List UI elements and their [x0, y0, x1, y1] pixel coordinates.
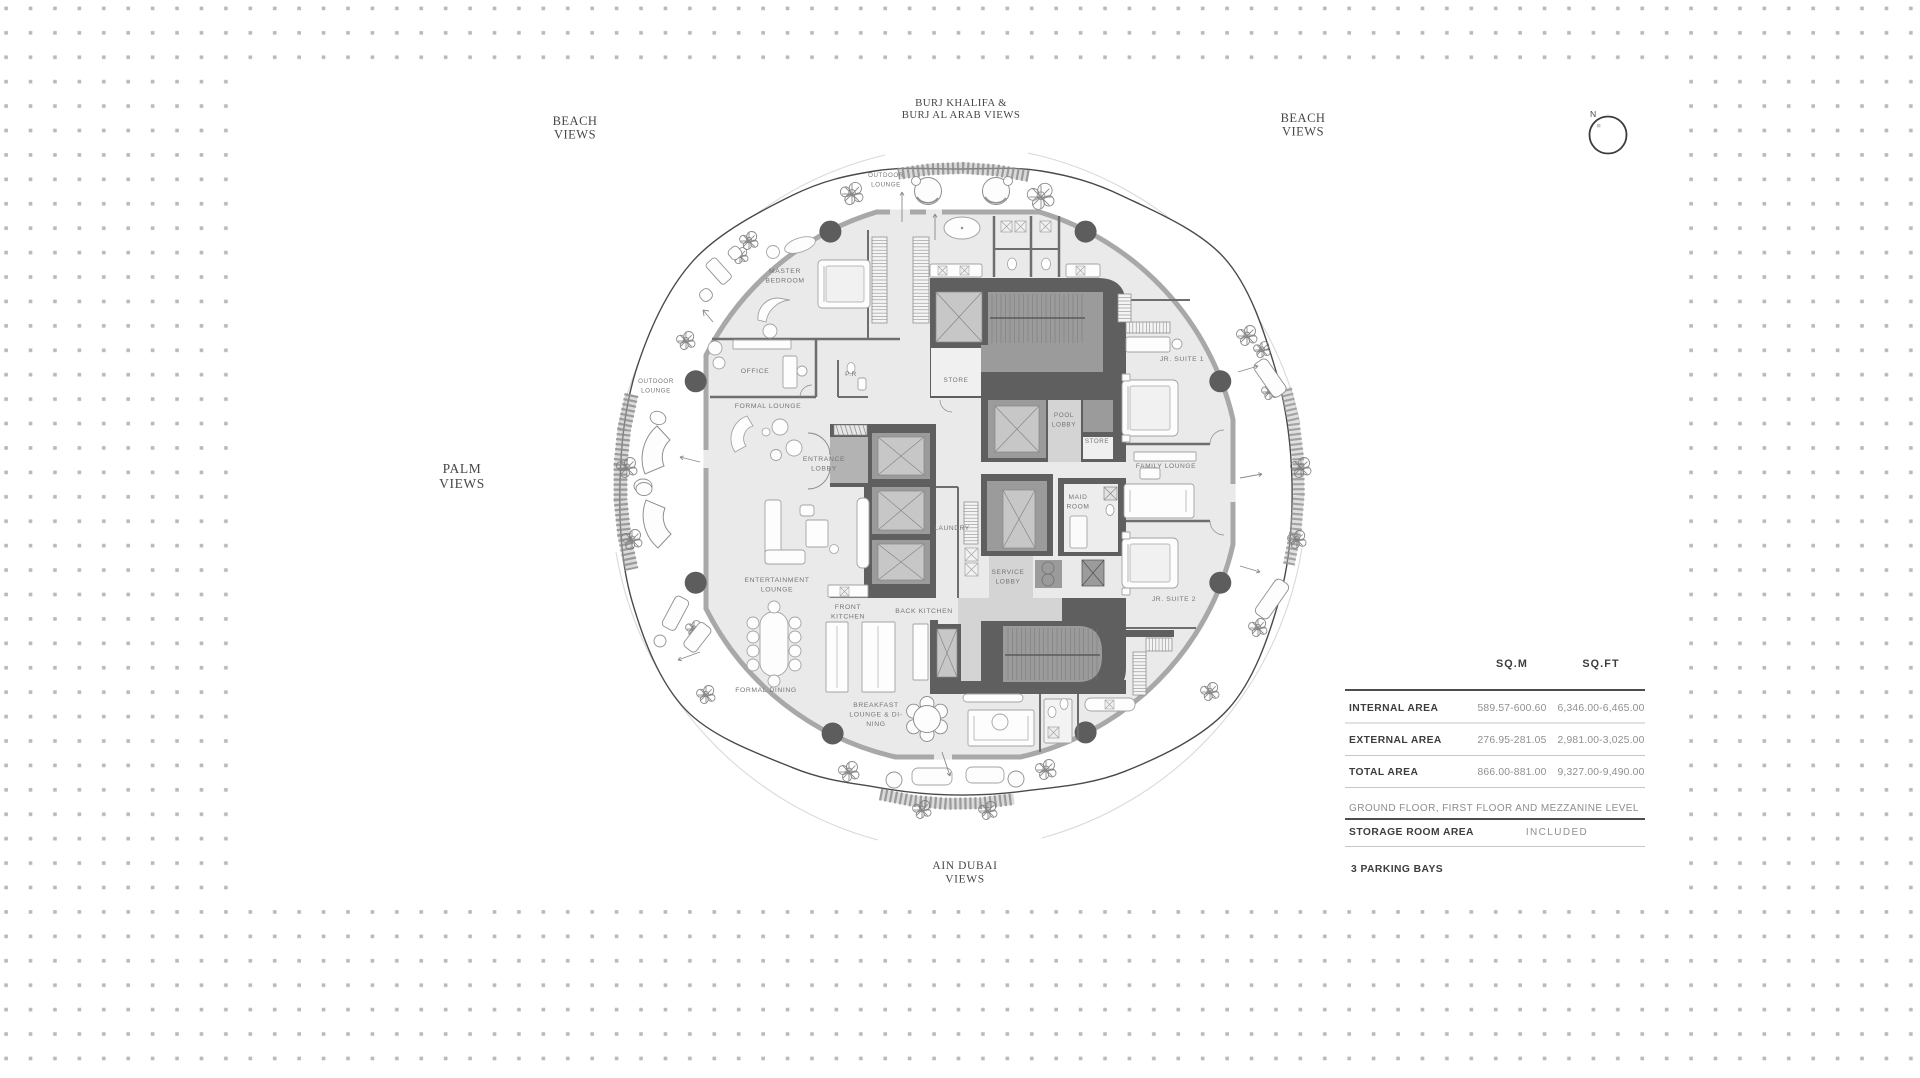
svg-text:STORE: STORE	[1085, 438, 1109, 445]
svg-text:JR. SUITE 1: JR. SUITE 1	[1160, 356, 1204, 363]
svg-text:TOTAL AREA: TOTAL AREA	[1349, 767, 1418, 778]
svg-text:POOL: POOL	[1054, 412, 1074, 419]
svg-text:GROUND FLOOR, FIRST FLOOR AND: GROUND FLOOR, FIRST FLOOR AND MEZZANINE …	[1349, 803, 1639, 814]
svg-text:INCLUDED: INCLUDED	[1526, 827, 1588, 838]
svg-text:2,981.00-3,025.00: 2,981.00-3,025.00	[1558, 735, 1645, 746]
svg-text:3 PARKING BAYS: 3 PARKING BAYS	[1351, 864, 1443, 875]
svg-text:SQ.FT: SQ.FT	[1582, 658, 1619, 670]
svg-text:589.57-600.60: 589.57-600.60	[1477, 703, 1546, 714]
svg-text:PALM: PALM	[443, 461, 482, 476]
svg-text:SQ.M: SQ.M	[1496, 658, 1528, 670]
svg-text:FAMILY LOUNGE: FAMILY LOUNGE	[1136, 463, 1196, 470]
svg-text:INTERNAL AREA: INTERNAL AREA	[1349, 703, 1438, 714]
svg-text:OUTDOOR: OUTDOOR	[868, 172, 904, 179]
svg-text:AIN DUBAI: AIN DUBAI	[932, 860, 997, 872]
svg-text:N: N	[1590, 109, 1596, 119]
svg-text:NING: NING	[866, 721, 885, 728]
svg-text:BEACH: BEACH	[553, 114, 598, 128]
svg-text:LOBBY: LOBBY	[811, 466, 837, 473]
svg-text:OFFICE: OFFICE	[741, 368, 770, 375]
svg-text:BREAKFAST: BREAKFAST	[853, 702, 898, 709]
svg-text:BURJ KHALIFA &: BURJ KHALIFA &	[915, 97, 1007, 109]
svg-text:LAUNDRY: LAUNDRY	[934, 525, 970, 532]
svg-text:ROOM: ROOM	[1067, 504, 1090, 511]
svg-text:ENTRANCE: ENTRANCE	[803, 456, 845, 463]
svg-text:MASTER: MASTER	[769, 268, 801, 275]
svg-text:BACK KITCHEN: BACK KITCHEN	[895, 608, 952, 615]
svg-text:FRONT: FRONT	[835, 604, 861, 611]
svg-text:VIEWS: VIEWS	[554, 128, 596, 142]
svg-text:BEACH: BEACH	[1281, 111, 1326, 125]
svg-text:6,346.00-6,465.00: 6,346.00-6,465.00	[1558, 703, 1645, 714]
svg-text:LOUNGE: LOUNGE	[871, 182, 901, 189]
svg-text:9,327.00-9,490.00: 9,327.00-9,490.00	[1558, 767, 1645, 778]
svg-text:ENTERTAINMENT: ENTERTAINMENT	[745, 577, 810, 584]
svg-text:STORE: STORE	[944, 377, 969, 384]
svg-text:276.95-281.05: 276.95-281.05	[1477, 735, 1546, 746]
svg-text:VIEWS: VIEWS	[1282, 125, 1324, 139]
svg-text:OUTDOOR: OUTDOOR	[638, 378, 674, 385]
svg-text:VIEWS: VIEWS	[439, 476, 485, 491]
svg-text:LOBBY: LOBBY	[1052, 422, 1076, 429]
svg-text:FORMAL DINING: FORMAL DINING	[735, 687, 797, 694]
svg-text:P.R: P.R	[845, 371, 857, 378]
svg-text:BEDROOM: BEDROOM	[765, 278, 804, 285]
svg-text:BURJ AL ARAB VIEWS: BURJ AL ARAB VIEWS	[902, 109, 1020, 121]
svg-text:JR. SUITE 2: JR. SUITE 2	[1152, 596, 1196, 603]
svg-text:LOBBY: LOBBY	[996, 579, 1021, 586]
svg-text:MAID: MAID	[1069, 494, 1088, 501]
svg-text:STORAGE ROOM AREA: STORAGE ROOM AREA	[1349, 827, 1474, 838]
svg-text:FORMAL LOUNGE: FORMAL LOUNGE	[735, 403, 801, 410]
svg-text:SERVICE: SERVICE	[991, 569, 1024, 576]
svg-text:LOUNGE: LOUNGE	[761, 587, 793, 594]
svg-text:LOUNGE: LOUNGE	[641, 388, 671, 395]
svg-text:EXTERNAL AREA: EXTERNAL AREA	[1349, 735, 1442, 746]
svg-text:KITCHEN: KITCHEN	[831, 614, 865, 621]
svg-text:866.00-881.00: 866.00-881.00	[1477, 767, 1546, 778]
svg-text:VIEWS: VIEWS	[945, 874, 984, 886]
svg-text:LOUNGE & DI-: LOUNGE & DI-	[849, 712, 902, 719]
